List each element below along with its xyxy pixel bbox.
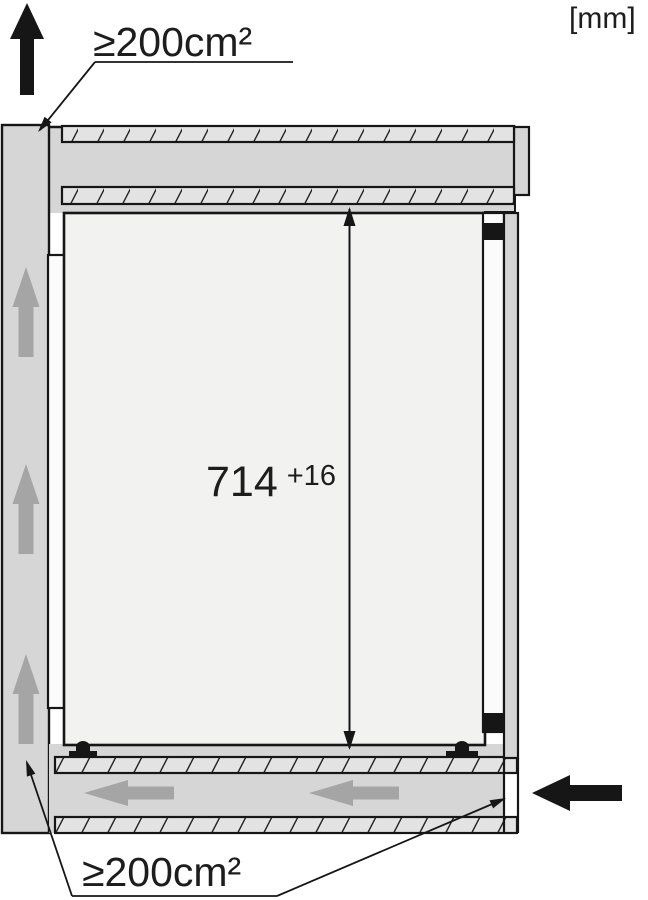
units-label: [mm] (569, 4, 636, 34)
plinth-hatch-lower (55, 817, 517, 833)
niche-height-label: 714 +16 (206, 461, 336, 504)
niche-height-value: 714 (206, 461, 278, 504)
niche-height-tolerance: +16 (287, 462, 336, 491)
diagram-artwork (0, 0, 648, 900)
leader-line-top (38, 62, 293, 132)
top-panel-hatch-upper (62, 126, 514, 142)
side-panel (504, 213, 518, 758)
top-panel-hatch-lower (62, 187, 514, 204)
air-outlet-arrow-icon (10, 3, 44, 95)
door-hinge-top (484, 223, 503, 240)
vent-area-top-label: ≥200cm² (93, 22, 252, 63)
installation-diagram: ≥200cm² [mm] 714 +16 ≥200cm² (0, 0, 648, 900)
vent-area-bottom-label: ≥200cm² (82, 852, 241, 893)
door-hinge-bottom (484, 713, 503, 732)
front-door-panel (483, 213, 504, 732)
air-inlet-arrow-icon (532, 775, 622, 811)
wall-bracket (514, 127, 529, 195)
rear-vent-spacer (48, 255, 65, 708)
plinth-hatch-upper (55, 757, 517, 773)
